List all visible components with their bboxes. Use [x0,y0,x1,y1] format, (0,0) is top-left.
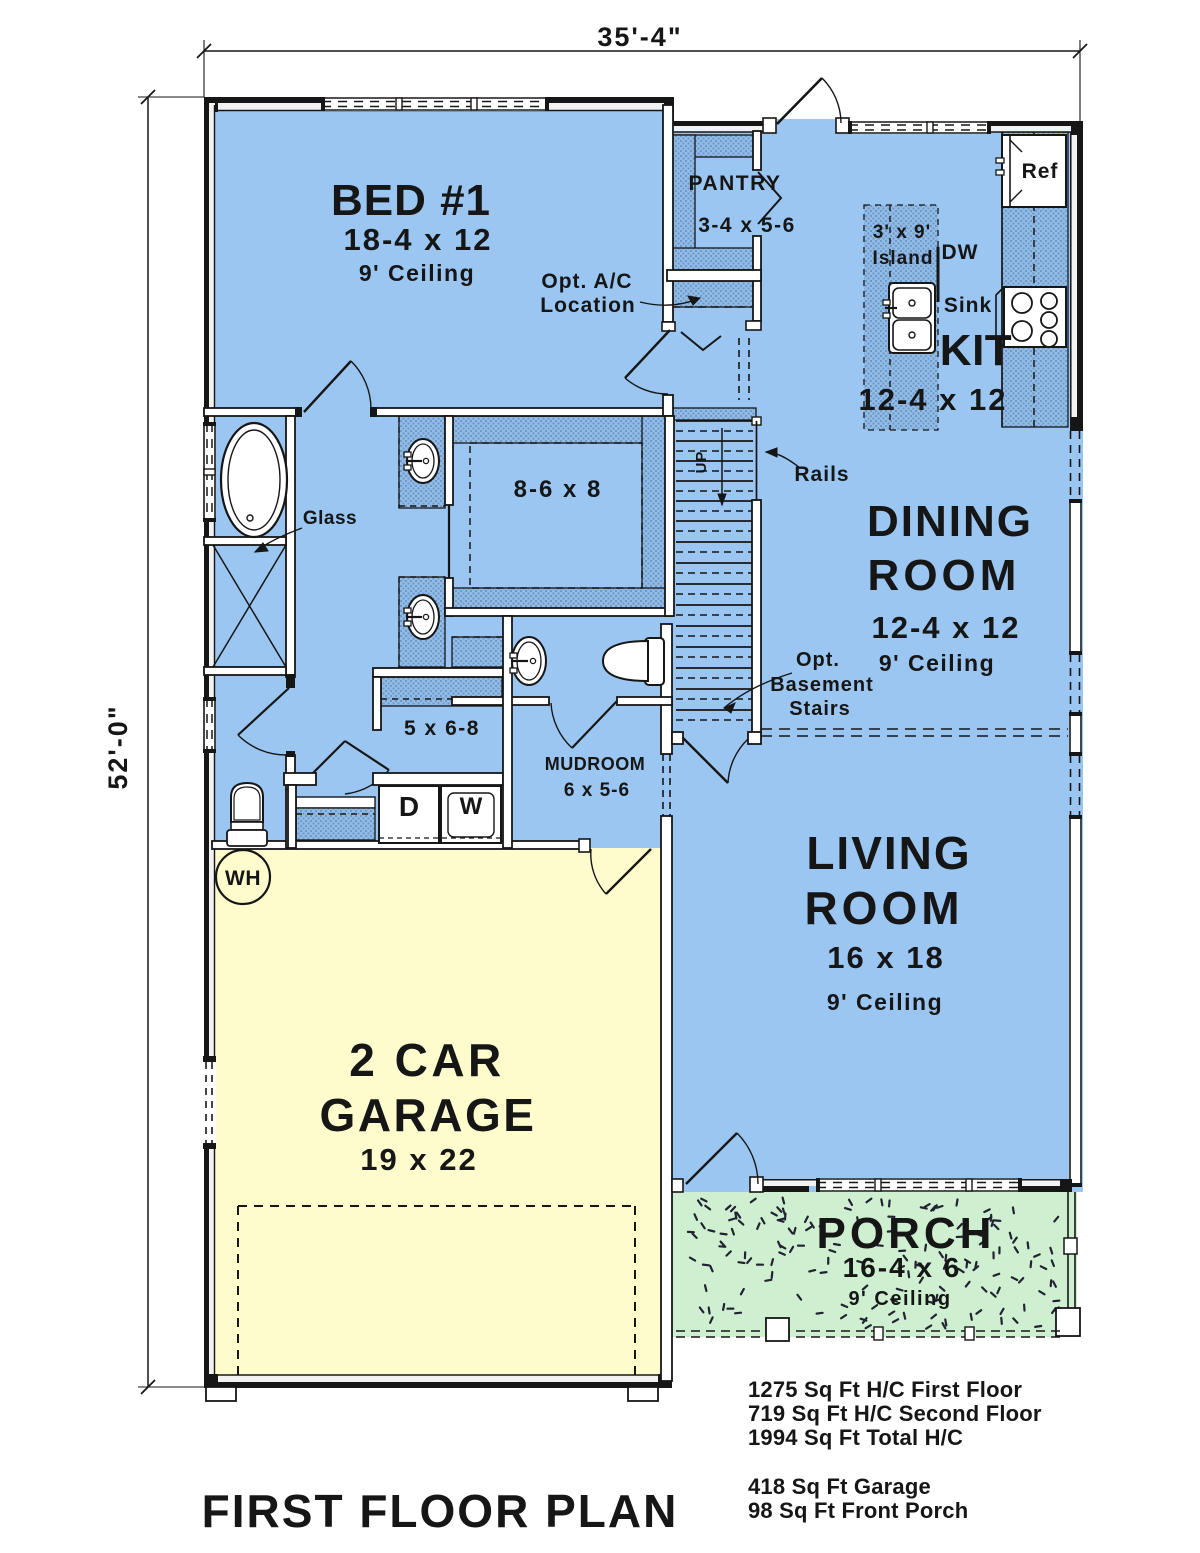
svg-text:9' Ceiling: 9' Ceiling [827,989,943,1015]
svg-text:Glass: Glass [303,508,357,529]
svg-text:719 Sq Ft H/C Second Floor: 719 Sq Ft H/C Second Floor [748,1401,1042,1426]
svg-text:3-4 x 5-6: 3-4 x 5-6 [698,214,796,237]
svg-text:9' Ceiling: 9' Ceiling [359,260,475,286]
svg-text:D: D [399,791,419,822]
svg-text:6 x 5-6: 6 x 5-6 [564,780,630,801]
svg-text:Opt.: Opt. [796,649,840,671]
svg-text:Ref: Ref [1022,160,1059,183]
svg-text:9' Ceiling: 9' Ceiling [848,1288,951,1310]
svg-text:Sink: Sink [944,294,992,317]
svg-text:KIT: KIT [940,326,1012,375]
svg-text:19 x 22: 19 x 22 [360,1142,477,1177]
svg-text:MUDROOM: MUDROOM [545,754,646,774]
svg-text:DW: DW [942,241,979,264]
svg-text:Basement: Basement [770,674,874,696]
svg-text:ROOM: ROOM [804,882,963,934]
svg-text:Opt. A/C: Opt. A/C [541,270,632,293]
svg-text:W: W [460,793,483,820]
svg-text:BED #1: BED #1 [331,176,491,225]
svg-text:1275 Sq Ft H/C First Floor: 1275 Sq Ft H/C First Floor [748,1377,1022,1402]
svg-text:PORCH: PORCH [817,1209,996,1258]
svg-text:PANTRY: PANTRY [689,172,782,195]
svg-text:52'-0": 52'-0" [103,704,133,789]
svg-text:1994 Sq Ft Total H/C: 1994 Sq Ft Total H/C [748,1425,963,1450]
svg-text:Stairs: Stairs [789,698,851,720]
svg-text:LIVING: LIVING [806,827,971,879]
svg-text:GARAGE: GARAGE [320,1089,537,1141]
svg-text:ROOM: ROOM [868,551,1021,600]
svg-text:8-6 x 8: 8-6 x 8 [514,476,603,503]
svg-text:3' x 9': 3' x 9' [873,222,931,243]
svg-text:Island: Island [873,248,934,269]
svg-text:16 x 18: 16 x 18 [827,940,944,975]
svg-text:9' Ceiling: 9' Ceiling [879,650,995,676]
svg-text:18-4 x 12: 18-4 x 12 [344,222,493,257]
svg-text:5 x 6-8: 5 x 6-8 [404,717,480,740]
svg-text:WH: WH [225,867,261,890]
svg-text:DINING: DINING [867,497,1033,546]
svg-text:98 Sq Ft Front Porch: 98 Sq Ft Front Porch [748,1498,968,1523]
svg-text:418 Sq Ft Garage: 418 Sq Ft Garage [748,1474,931,1499]
svg-text:12-4 x 12: 12-4 x 12 [859,382,1008,417]
svg-text:35'-4": 35'-4" [597,22,682,52]
svg-text:Rails: Rails [794,463,849,486]
svg-text:2 CAR: 2 CAR [349,1034,505,1086]
svg-text:FIRST FLOOR PLAN: FIRST FLOOR PLAN [202,1485,679,1537]
svg-text:12-4 x 12: 12-4 x 12 [872,610,1021,645]
svg-text:UP: UP [693,451,710,474]
svg-text:Location: Location [540,294,636,317]
svg-text:16-4 x 6: 16-4 x 6 [843,1252,962,1283]
